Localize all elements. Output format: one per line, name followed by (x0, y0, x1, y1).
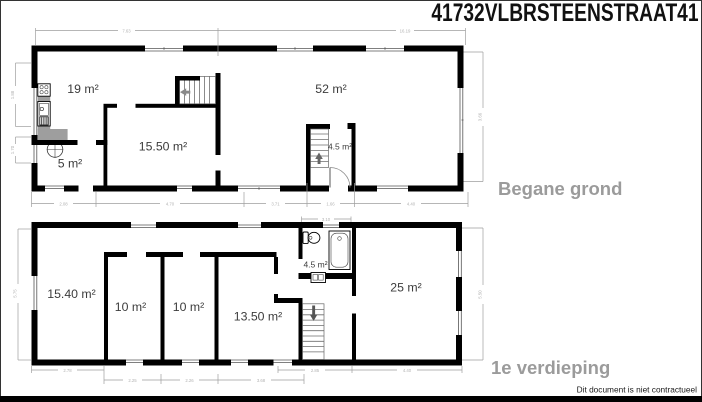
svg-text:4.40: 4.40 (403, 368, 412, 373)
svg-text:2.08: 2.08 (59, 202, 68, 207)
svg-text:2.78: 2.78 (63, 368, 72, 373)
svg-text:10 m²: 10 m² (173, 300, 204, 314)
svg-text:52 m²: 52 m² (315, 82, 346, 96)
svg-text:15.40 m²: 15.40 m² (47, 287, 96, 301)
svg-text:Dit document is niet contractu: Dit document is niet contractueel (577, 385, 698, 395)
svg-text:4.5 m²: 4.5 m² (303, 260, 327, 270)
svg-text:4.70: 4.70 (166, 202, 175, 207)
svg-text:3.71: 3.71 (271, 202, 280, 207)
svg-text:41732VLBRSTEENSTRAAT41: 41732VLBRSTEENSTRAAT41 (431, 0, 698, 27)
svg-text:15.50 m²: 15.50 m² (139, 140, 188, 154)
svg-text:19 m²: 19 m² (67, 82, 98, 96)
svg-text:Begane grond: Begane grond (498, 178, 622, 199)
svg-text:4.40: 4.40 (407, 202, 416, 207)
svg-text:1e verdieping: 1e verdieping (491, 357, 610, 378)
svg-text:10 m²: 10 m² (115, 300, 146, 314)
svg-text:3.68: 3.68 (257, 378, 266, 383)
svg-text:2.25: 2.25 (128, 378, 137, 383)
svg-text:2.26: 2.26 (185, 378, 194, 383)
svg-text:25 m²: 25 m² (390, 281, 421, 295)
svg-text:5.75: 5.75 (13, 289, 18, 298)
svg-text:4.5 m²: 4.5 m² (328, 142, 352, 152)
svg-text:16.19: 16.19 (400, 28, 411, 33)
svg-text:1.70: 1.70 (10, 145, 15, 154)
svg-text:7.63: 7.63 (122, 28, 131, 33)
svg-text:5.50: 5.50 (478, 290, 483, 299)
svg-text:2.85: 2.85 (311, 368, 320, 373)
svg-text:1.66: 1.66 (326, 202, 335, 207)
svg-text:5 m²: 5 m² (58, 157, 83, 171)
svg-text:3.10: 3.10 (322, 217, 331, 222)
svg-text:13.50 m²: 13.50 m² (234, 310, 283, 324)
svg-text:1.88: 1.88 (10, 90, 15, 99)
svg-text:3.66: 3.66 (478, 112, 483, 121)
